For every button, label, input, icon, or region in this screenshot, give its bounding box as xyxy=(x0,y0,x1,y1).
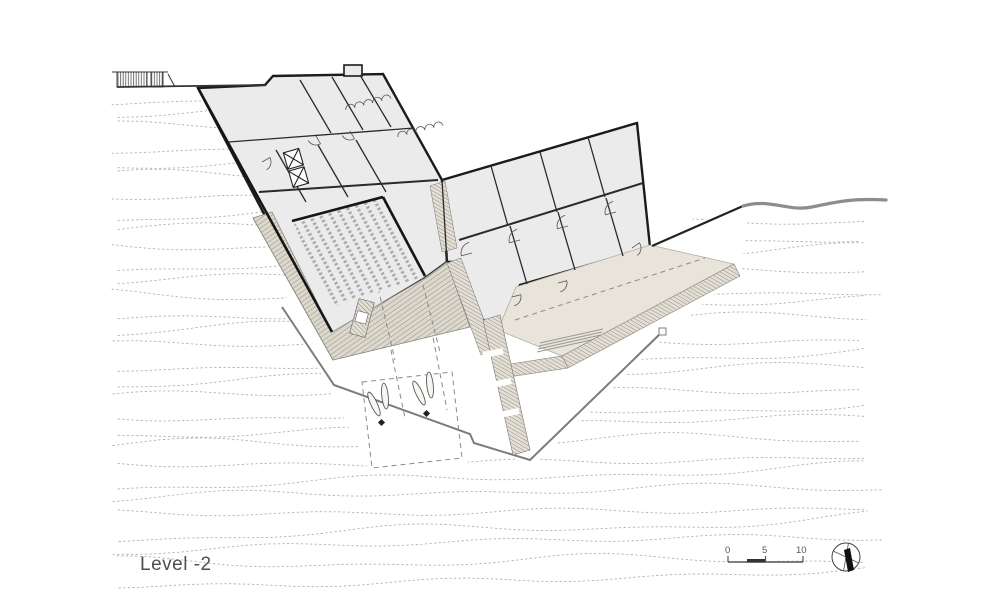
scale-label-10: 10 xyxy=(796,545,807,556)
north-arrow-icon xyxy=(832,543,860,572)
scale-bar: 0 5 10 xyxy=(725,545,807,563)
scale-label-5: 5 xyxy=(762,545,767,556)
scale-label-0: 0 xyxy=(725,545,730,556)
floor-plan-drawing: Level -2 0 5 10 xyxy=(0,0,1000,591)
level-label: Level -2 xyxy=(140,554,212,575)
roof-notch xyxy=(344,65,362,76)
floor-plan-canvas: Level -2 0 5 10 xyxy=(0,0,1000,591)
